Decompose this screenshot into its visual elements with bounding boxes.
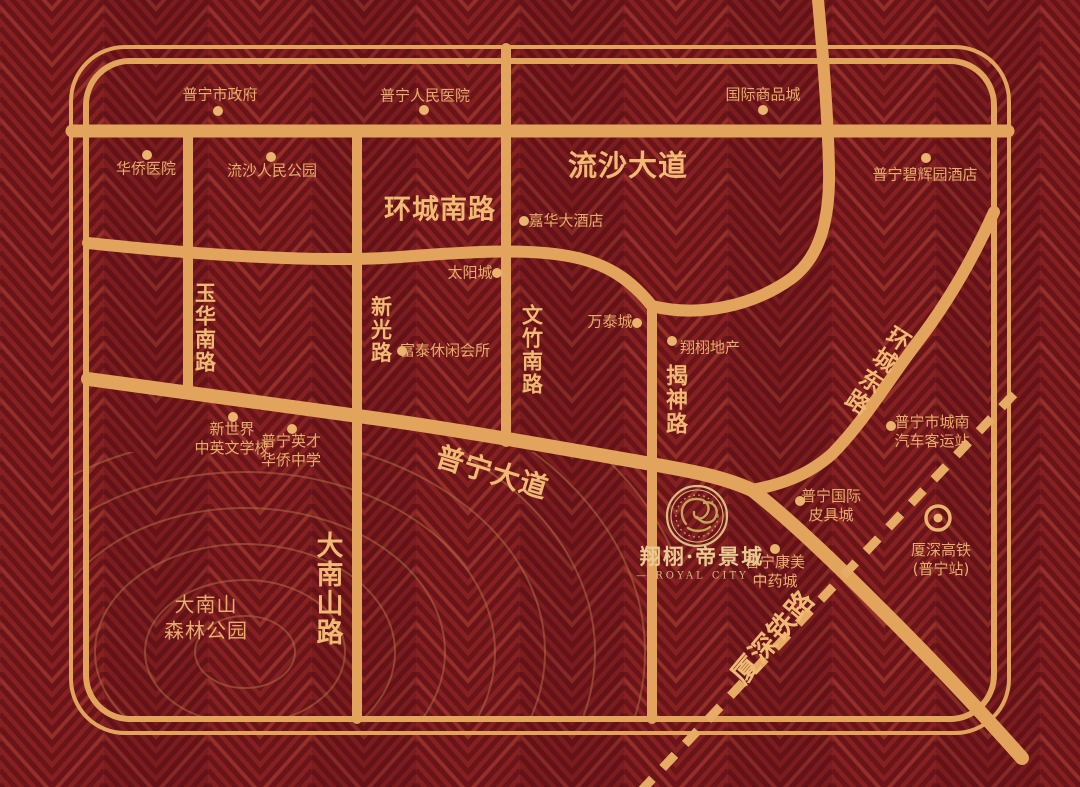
- location-map: 流沙大道 环城南路 玉华南路 新光路 文竹南路 揭神路 大南山路 环城东路 普宁…: [0, 0, 1080, 787]
- poi-dot: [397, 346, 407, 356]
- poi-dot: [142, 150, 152, 160]
- poi-dot: [667, 336, 677, 346]
- poi-dot: [632, 318, 642, 328]
- poi-dot: [519, 216, 529, 226]
- poi-dot: [287, 424, 297, 434]
- poi-dot: [228, 412, 238, 422]
- poi-dot: [770, 544, 780, 554]
- poi-dot: [213, 106, 223, 116]
- project-subtitle: — ROYAL CITY —: [636, 571, 768, 582]
- poi-dot: [266, 152, 276, 162]
- map-graphic: [0, 0, 1080, 787]
- poi-dot: [795, 496, 805, 506]
- poi-dot: [921, 153, 931, 163]
- project-wordmark: 翔栩·帝景城: [640, 541, 764, 571]
- poi-dot: [758, 105, 768, 115]
- poi-dot: [419, 105, 429, 115]
- poi-dot: [492, 268, 502, 278]
- poi-dot: [886, 421, 896, 431]
